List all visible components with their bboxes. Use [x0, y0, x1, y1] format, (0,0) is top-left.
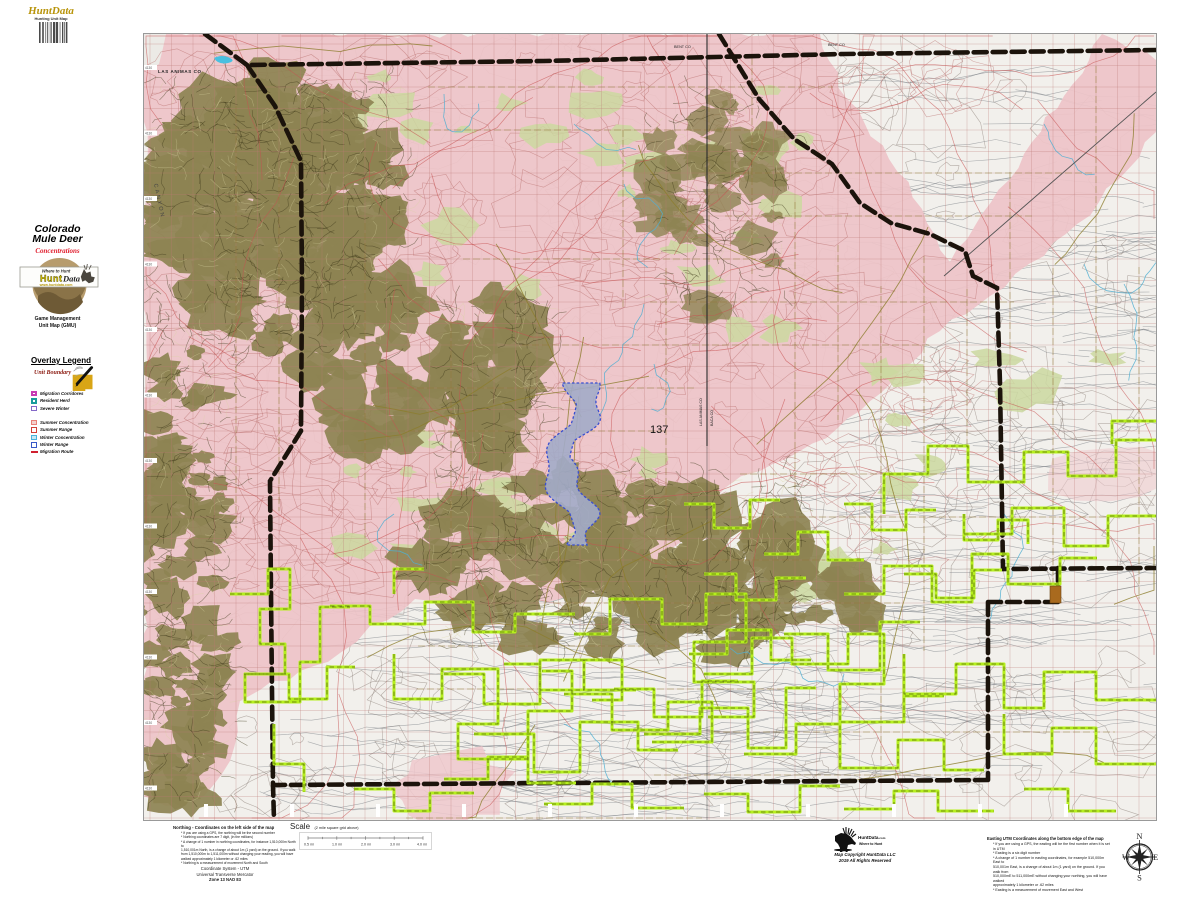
svg-text:W: W — [1122, 852, 1130, 862]
svg-text:BENT CO: BENT CO — [674, 45, 691, 49]
svg-text:4130: 4130 — [145, 328, 152, 332]
svg-text:Where to Hunt: Where to Hunt — [859, 842, 883, 846]
svg-text:0.5 mi: 0.5 mi — [304, 843, 314, 847]
svg-text:4130: 4130 — [145, 263, 152, 267]
svg-text:4130: 4130 — [145, 656, 152, 660]
svg-text:E: E — [1153, 852, 1158, 862]
svg-text:4130: 4130 — [145, 394, 152, 398]
svg-text:4.0 mi: 4.0 mi — [417, 843, 427, 847]
svg-text:1.0 mi: 1.0 mi — [332, 843, 342, 847]
svg-text:S: S — [1137, 873, 1142, 883]
svg-text:4130: 4130 — [145, 132, 152, 136]
svg-text:BACA CO: BACA CO — [710, 410, 714, 426]
svg-text:4130: 4130 — [145, 459, 152, 463]
svg-text:HuntData.com: HuntData.com — [858, 835, 886, 840]
svg-text:4130: 4130 — [145, 525, 152, 529]
svg-text:137: 137 — [650, 424, 668, 436]
svg-text:4130: 4130 — [145, 66, 152, 70]
svg-text:www.huntdata.com: www.huntdata.com — [39, 283, 73, 287]
svg-text:LAS ANIMAS CO: LAS ANIMAS CO — [699, 398, 703, 426]
svg-text:4130: 4130 — [145, 787, 152, 791]
svg-text:4130: 4130 — [145, 590, 152, 594]
svg-text:4130: 4130 — [145, 721, 152, 725]
svg-text:2.0 mi: 2.0 mi — [361, 843, 371, 847]
svg-text:4130: 4130 — [145, 197, 152, 201]
svg-text:LAS ANIMAS CO: LAS ANIMAS CO — [158, 69, 202, 74]
svg-text:BENT CO: BENT CO — [828, 43, 845, 47]
svg-text:3.0 mi: 3.0 mi — [390, 843, 400, 847]
svg-text:N: N — [1136, 831, 1142, 841]
